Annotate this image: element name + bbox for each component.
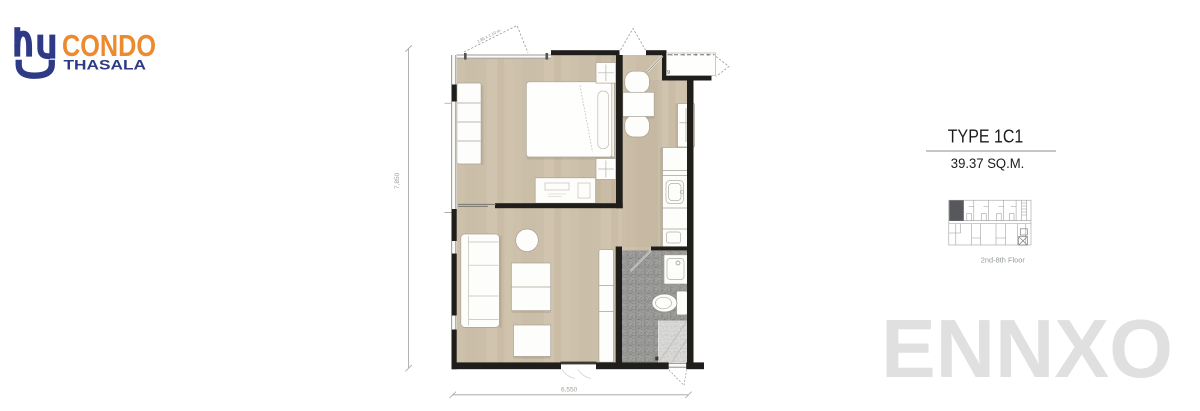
svg-text:7,850: 7,850 — [394, 172, 401, 189]
svg-text:TYPE 1C1: TYPE 1C1 — [948, 126, 1024, 147]
svg-text:39.37 SQ.M.: 39.37 SQ.M. — [951, 156, 1025, 172]
svg-text:9: 9 — [667, 70, 670, 76]
svg-text:2nd-8th Floor: 2nd-8th Floor — [981, 256, 1025, 265]
svg-text:6,550: 6,550 — [561, 387, 578, 394]
svg-text:THASALA: THASALA — [64, 58, 147, 73]
svg-text:ENNXO: ENNXO — [881, 302, 1173, 395]
